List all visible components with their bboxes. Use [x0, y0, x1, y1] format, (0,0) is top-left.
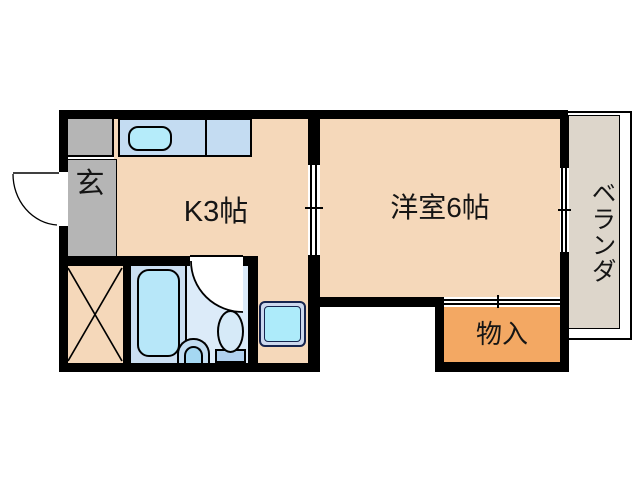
entrance-label: 玄 [70, 169, 110, 199]
entrance-door-swing-icon [13, 174, 57, 225]
veranda-label: ベランダ [581, 172, 615, 292]
floor-plan-canvas: 玄 K3帖 洋室6帖 物入 ベランダ [0, 0, 638, 480]
bathtub-icon [137, 269, 180, 357]
storage-label: 物入 [448, 321, 556, 348]
crossed-box-icon [68, 268, 122, 361]
washing-machine-pan-inner [264, 306, 301, 342]
western-room-label: 洋室6帖 [355, 193, 525, 222]
washbasin-bowl [184, 346, 203, 363]
kitchen-label: K3帖 [141, 197, 291, 227]
door-swing-overlay [0, 0, 638, 480]
toilet-icon [217, 310, 244, 353]
